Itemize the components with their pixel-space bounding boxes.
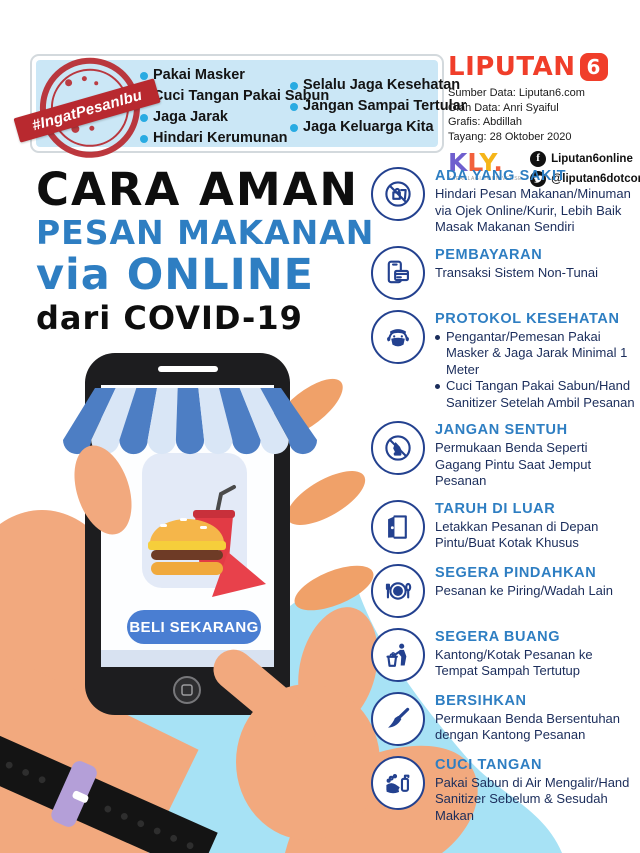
- tip-heading: PEMBAYARAN: [435, 247, 598, 263]
- tip-body: Hindari Pesan Makanan/Minuman via Ojek O…: [435, 186, 635, 236]
- credit-line: Grafis: Abdillah: [448, 115, 636, 130]
- no-delivery-icon: [371, 167, 425, 221]
- tip-bullet: Cuci Tangan Pakai Sabun/Hand Sanitizer S…: [435, 378, 635, 411]
- tip-ada-yang-sakit: ADA YANG SAKIT Hindari Pesan Makanan/Min…: [371, 167, 635, 236]
- tip-body: Pesanan ke Piring/Wadah Lain: [435, 583, 613, 600]
- tip-segera-buang: SEGERA BUANG Kantong/Kotak Pesanan ke Te…: [371, 628, 635, 682]
- facebook-label: Liputan6online: [551, 153, 633, 165]
- tip-segera-pindahkan: SEGERA PINDAHKAN Pesanan ke Piring/Wadah…: [371, 564, 635, 618]
- tip-body: Pakai Sabun di Air Mengalir/Hand Sanitiz…: [435, 775, 635, 825]
- title-line-1: CARA AMAN: [36, 166, 374, 213]
- tip-body: Kantong/Kotak Pesanan ke Tempat Sampah T…: [435, 647, 635, 680]
- trash-icon: [371, 628, 425, 682]
- tip-bersihkan: BERSIHKAN Permukaan Benda Bersentuhan de…: [371, 692, 635, 746]
- door-icon: [371, 500, 425, 554]
- tip-body: Transaksi Sistem Non-Tunai: [435, 265, 598, 282]
- tip-pembayaran: PEMBAYARAN Transaksi Sistem Non-Tunai: [371, 246, 635, 300]
- tip-body: Permukaan Benda Seperti Gagang Pintu Saa…: [435, 440, 635, 490]
- hashtag-stamp: #IngatPesanIbu: [18, 52, 155, 167]
- plate-icon: [371, 564, 425, 618]
- no-touch-icon: [371, 421, 425, 475]
- facebook-icon: f: [530, 151, 546, 167]
- tip-body: Letakkan Pesanan di Depan Pintu/Buat Kot…: [435, 519, 635, 552]
- tip-cuci-tangan: CUCI TANGAN Pakai Sabun di Air Mengalir/…: [371, 756, 635, 825]
- tip-heading: CUCI TANGAN: [435, 757, 635, 773]
- reminder-item: Jangan Sampai Tertular: [290, 96, 466, 117]
- payment-icon: [371, 246, 425, 300]
- clean-icon: [371, 692, 425, 746]
- tip-bullet-list: Pengantar/Pemesan Pakai Masker & Jaga Ja…: [435, 329, 635, 412]
- liputan6-logo: LIPUTAN 6: [448, 52, 636, 82]
- facebook-handle[interactable]: f Liputan6online: [530, 151, 640, 167]
- credit-line: Olah Data: Anri Syaiful: [448, 101, 636, 116]
- reminder-item: Selalu Jaga Kesehatan: [290, 75, 466, 96]
- title-line-4: dari COVID-19: [36, 301, 374, 336]
- tip-heading: TARUH DI LUAR: [435, 501, 635, 517]
- title-line-2: PESAN MAKANAN: [36, 215, 374, 251]
- tip-heading: JANGAN SENTUH: [435, 422, 635, 438]
- title-line-3: via ONLINE: [36, 253, 374, 298]
- tips-list: ADA YANG SAKIT Hindari Pesan Makanan/Min…: [371, 167, 635, 824]
- reminder-list-right: Selalu Jaga Kesehatan Jangan Sampai Tert…: [290, 75, 466, 138]
- reminder-item: Jaga Keluarga Kita: [290, 117, 466, 138]
- tip-heading: PROTOKOL KESEHATAN: [435, 311, 635, 327]
- credit-line: Sumber Data: Liputan6.com: [448, 86, 636, 101]
- credit-line: Tayang: 28 Oktober 2020: [448, 130, 636, 145]
- tip-body: Permukaan Benda Bersentuhan dengan Kanto…: [435, 711, 635, 744]
- tip-heading: SEGERA PINDAHKAN: [435, 565, 613, 581]
- liputan6-six-badge: 6: [580, 53, 608, 81]
- tip-bullet: Pengantar/Pemesan Pakai Masker & Jaga Ja…: [435, 329, 635, 379]
- main-title: CARA AMAN PESAN MAKANAN via ONLINE dari …: [36, 166, 374, 336]
- wash-icon: [371, 756, 425, 810]
- tip-heading: ADA YANG SAKIT: [435, 168, 635, 184]
- buy-now-button[interactable]: BELI SEKARANG: [127, 610, 261, 644]
- tip-heading: BERSIHKAN: [435, 693, 635, 709]
- credits-block: Sumber Data: Liputan6.com Olah Data: Anr…: [448, 86, 636, 145]
- tip-protokol-kesehatan: PROTOKOL KESEHATAN Pengantar/Pemesan Pak…: [371, 310, 635, 412]
- mask-icon: [371, 310, 425, 364]
- tip-taruh-di-luar: TARUH DI LUAR Letakkan Pesanan di Depan …: [371, 500, 635, 554]
- tip-jangan-sentuh: JANGAN SENTUH Permukaan Benda Seperti Ga…: [371, 421, 635, 490]
- liputan6-wordmark: LIPUTAN: [448, 52, 576, 82]
- tip-heading: SEGERA BUANG: [435, 629, 635, 645]
